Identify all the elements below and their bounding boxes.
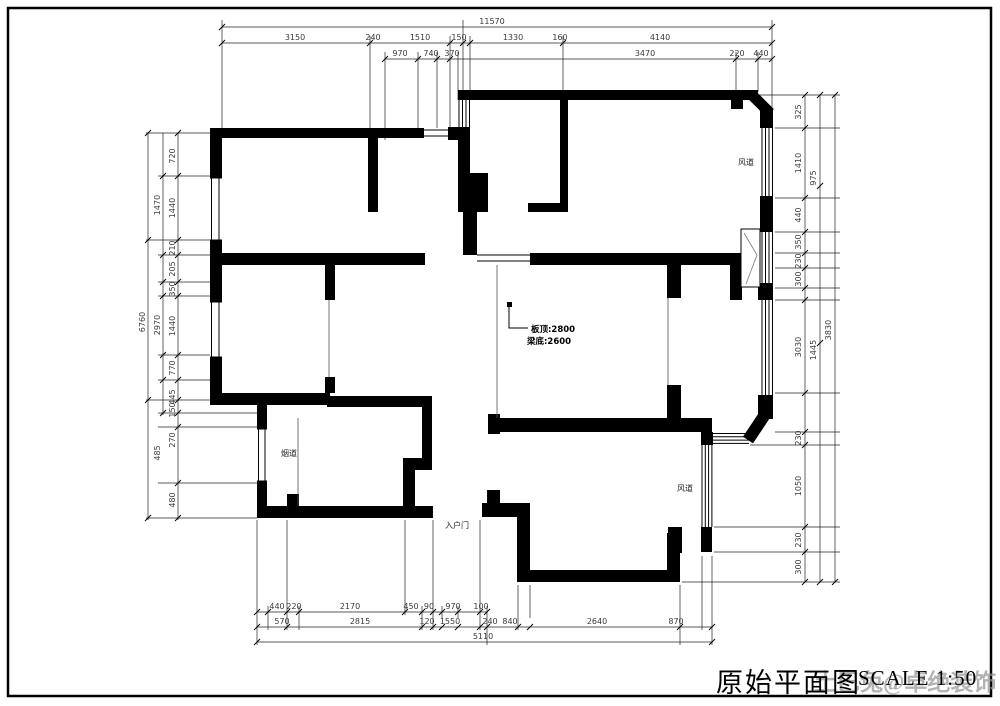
plan-label: 烟道 — [281, 448, 297, 458]
plan-label: 风道 — [677, 483, 693, 493]
dim-label: 230 — [794, 253, 803, 268]
dim-label: 3150 — [285, 33, 305, 42]
sill-box — [741, 229, 760, 287]
dim-label: 970 — [392, 49, 407, 58]
dim-label: 1510 — [410, 33, 430, 42]
dim-label: 205 — [168, 261, 177, 276]
height-note-leader — [507, 302, 528, 328]
dim-label: 3470 — [635, 49, 655, 58]
dim-label: 220 — [729, 49, 744, 58]
dim-label: 4140 — [650, 33, 670, 42]
dim-label: 230 — [794, 532, 803, 547]
height-note-line1: 板顶:2800 — [531, 324, 575, 335]
dim-label: 1550 — [440, 617, 460, 626]
dim-label: 1440 — [168, 198, 177, 218]
dim-label: 870 — [668, 617, 683, 626]
dim-label: 350 — [794, 234, 803, 249]
dim-label: 1470 — [153, 195, 162, 215]
dim-labels-top: 1157031502401510150133016041409707403703… — [285, 17, 769, 58]
windows — [210, 100, 773, 527]
dim-label: 440 — [269, 602, 284, 611]
dim-label: 350 — [168, 281, 177, 296]
dim-labels-bottom: 4402202170450909701005702815120155024084… — [269, 602, 683, 641]
dim-label: 325 — [794, 104, 803, 119]
dim-label: 2640 — [587, 617, 607, 626]
height-note-line2: 梁底:2600 — [526, 336, 571, 347]
dimension-lines — [146, 20, 840, 645]
dim-label: 11570 — [479, 17, 504, 26]
dim-label: 150 — [451, 33, 466, 42]
floor-plan-page: 板顶:2800 梁底:2600 115703150240151015013301… — [0, 0, 1000, 706]
dim-label: 770 — [168, 360, 177, 375]
dim-label: 120 — [419, 617, 434, 626]
dim-label: 300 — [794, 271, 803, 286]
dim-labels-left: 6760147029704857201440210205350144077044… — [138, 148, 177, 507]
dim-label: 240 — [365, 33, 380, 42]
dim-label: 2970 — [153, 315, 162, 335]
dim-label: 100 — [473, 602, 488, 611]
dim-label: 240 — [482, 617, 497, 626]
dim-label: 1410 — [794, 153, 803, 173]
dim-label: 970 — [445, 602, 460, 611]
dim-label: 570 — [274, 617, 289, 626]
plan-label: 风道 — [738, 157, 754, 167]
dim-label: 440 — [753, 49, 768, 58]
dim-label: 2170 — [340, 602, 360, 611]
dim-label: 3030 — [794, 337, 803, 357]
dim-label: 370 — [444, 49, 459, 58]
dim-labels-right: 3251410440350230300303023010502303009751… — [794, 104, 833, 574]
dim-label: 720 — [168, 148, 177, 163]
dim-label: 1330 — [503, 33, 523, 42]
dim-label: 90 — [424, 602, 434, 611]
dim-label: 445 — [168, 389, 177, 404]
dim-label: 230 — [794, 430, 803, 445]
dim-label: 5110 — [473, 632, 493, 641]
dim-label: 6760 — [138, 312, 147, 332]
dim-label: 440 — [794, 207, 803, 222]
dim-label: 220 — [286, 602, 301, 611]
dim-label: 1050 — [794, 476, 803, 496]
dim-label: 270 — [168, 432, 177, 447]
dim-label: 150 — [168, 402, 177, 417]
plan-label: 入户门 — [445, 520, 469, 530]
dim-label: 480 — [168, 492, 177, 507]
drawing-border — [8, 8, 991, 696]
dim-label: 160 — [552, 33, 567, 42]
dim-label: 2815 — [350, 617, 370, 626]
dim-label: 450 — [403, 602, 418, 611]
floor-plan-drawing: 板顶:2800 梁底:2600 115703150240151015013301… — [0, 0, 1000, 706]
dim-label: 1445 — [809, 340, 818, 360]
dim-label: 1440 — [168, 316, 177, 336]
walls — [210, 90, 773, 582]
dim-label: 485 — [153, 445, 162, 460]
room-shaft-labels: 风道风道烟道入户门 — [281, 157, 754, 530]
dim-label: 210 — [168, 240, 177, 255]
dim-label: 840 — [502, 617, 517, 626]
interior-lines — [298, 265, 668, 506]
dim-label: 975 — [809, 170, 818, 185]
dim-label: 740 — [423, 49, 438, 58]
dim-label: 300 — [794, 559, 803, 574]
dim-label: 3830 — [824, 320, 833, 340]
